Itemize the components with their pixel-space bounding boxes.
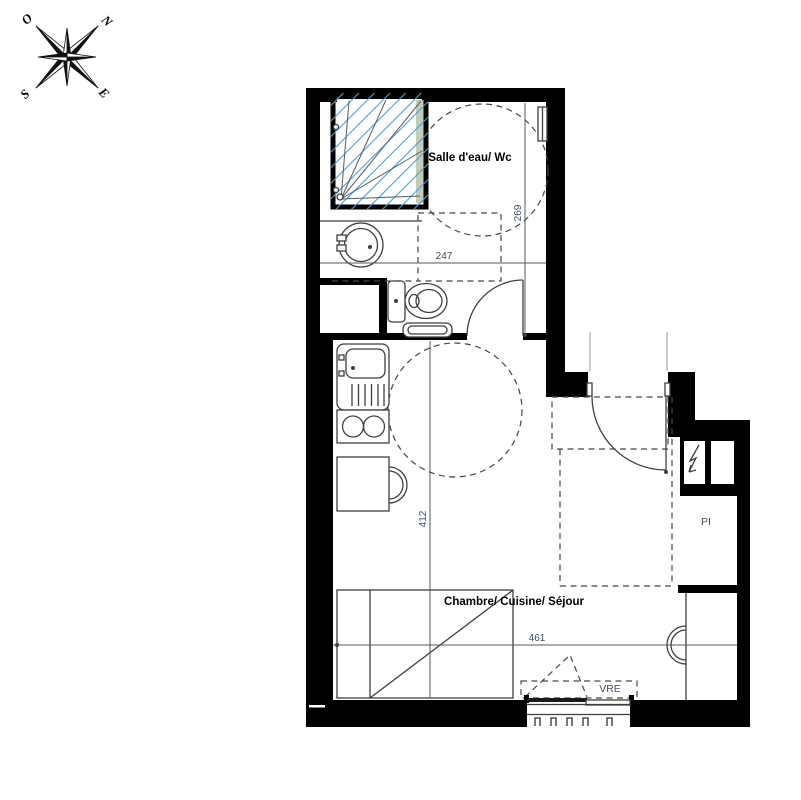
- washbasin: [337, 223, 383, 267]
- dim-label-247: 247: [436, 251, 453, 262]
- sink-bowl: [346, 349, 385, 378]
- worktop-cabinet: [337, 457, 407, 511]
- dim-label-269: 269: [513, 204, 524, 221]
- sink-drain: [351, 366, 355, 370]
- cooktop: [337, 410, 389, 443]
- faucet-handle-2: [337, 245, 346, 251]
- room-label-main: Chambre/ Cuisine/ Séjour: [444, 596, 584, 608]
- bathroom-door: [467, 280, 523, 336]
- dim-label-412: 412: [418, 510, 429, 527]
- wall-bottom-left: [306, 700, 527, 727]
- toilet-flush-button: [394, 299, 398, 303]
- wall-entrance-left-stub: [565, 372, 588, 397]
- compass-south-label: S: [17, 86, 33, 102]
- window-opening-triangle: [525, 655, 587, 697]
- panel-empty-box: [711, 441, 734, 484]
- bathroom-door-swing: [467, 280, 523, 336]
- compass-east-label: E: [95, 84, 113, 102]
- wall-left-bathroom: [306, 88, 320, 340]
- radiator: [538, 107, 547, 141]
- kitchen-units: [337, 344, 407, 511]
- electrical-and-closet: PI: [678, 437, 737, 593]
- sink-tap-2: [339, 371, 344, 376]
- shower: [331, 93, 428, 209]
- shower-pivot: [337, 194, 343, 200]
- floor-plan-page: N O S E PI: [0, 0, 801, 800]
- toilet: [388, 281, 452, 337]
- floor-plan-drawing: N O S E PI: [0, 0, 801, 800]
- wall-left-main: [306, 340, 333, 703]
- cabinet-round-inner: [389, 471, 403, 499]
- compass-west-label: O: [18, 10, 36, 28]
- shower-hinge-bottom: [334, 188, 339, 193]
- window-and-balcony: VRE: [524, 683, 634, 726]
- shower-hinge-top: [334, 125, 339, 130]
- wall-right-outer: [737, 420, 750, 727]
- entrance-jamb-left: [587, 383, 592, 396]
- sink-tap-1: [339, 355, 344, 360]
- toilet-bowl: [405, 284, 447, 319]
- compass-rose-icon: N O S E: [17, 10, 116, 102]
- shutter-label: VRE: [599, 683, 621, 695]
- turning-circle-bathroom: [416, 104, 548, 236]
- toilet-mat: [403, 323, 452, 337]
- basin-drain: [368, 245, 372, 249]
- turning-circle-main: [388, 343, 522, 477]
- electrical-panel-box: [684, 441, 705, 484]
- wall-joint-mark: [309, 705, 325, 708]
- compass-north-label: N: [98, 11, 116, 29]
- entrance-door-swing: [592, 396, 666, 470]
- room-label-bathroom: Salle d'eau/ Wc: [428, 152, 512, 164]
- wall-bottom-right: [630, 700, 750, 727]
- closet-bottom-wall: [678, 585, 737, 593]
- clearance-rect-bathroom: [418, 213, 501, 281]
- closet-label: PI: [701, 516, 711, 528]
- wall-right-bathroom: [546, 88, 565, 397]
- desk: [667, 593, 686, 700]
- faucet-handle-1: [337, 235, 346, 241]
- balcony-balusters: [535, 718, 612, 726]
- window-panel-left: [528, 698, 587, 702]
- kitchen-sink: [337, 344, 389, 410]
- dim-label-461: 461: [529, 633, 546, 644]
- cabinet-round-outer: [389, 467, 407, 503]
- duct-wall-right: [379, 278, 387, 340]
- wall-entrance-right: [668, 372, 695, 437]
- clearance-rect-entrance: [552, 397, 668, 449]
- entrance-jamb-right: [665, 383, 670, 396]
